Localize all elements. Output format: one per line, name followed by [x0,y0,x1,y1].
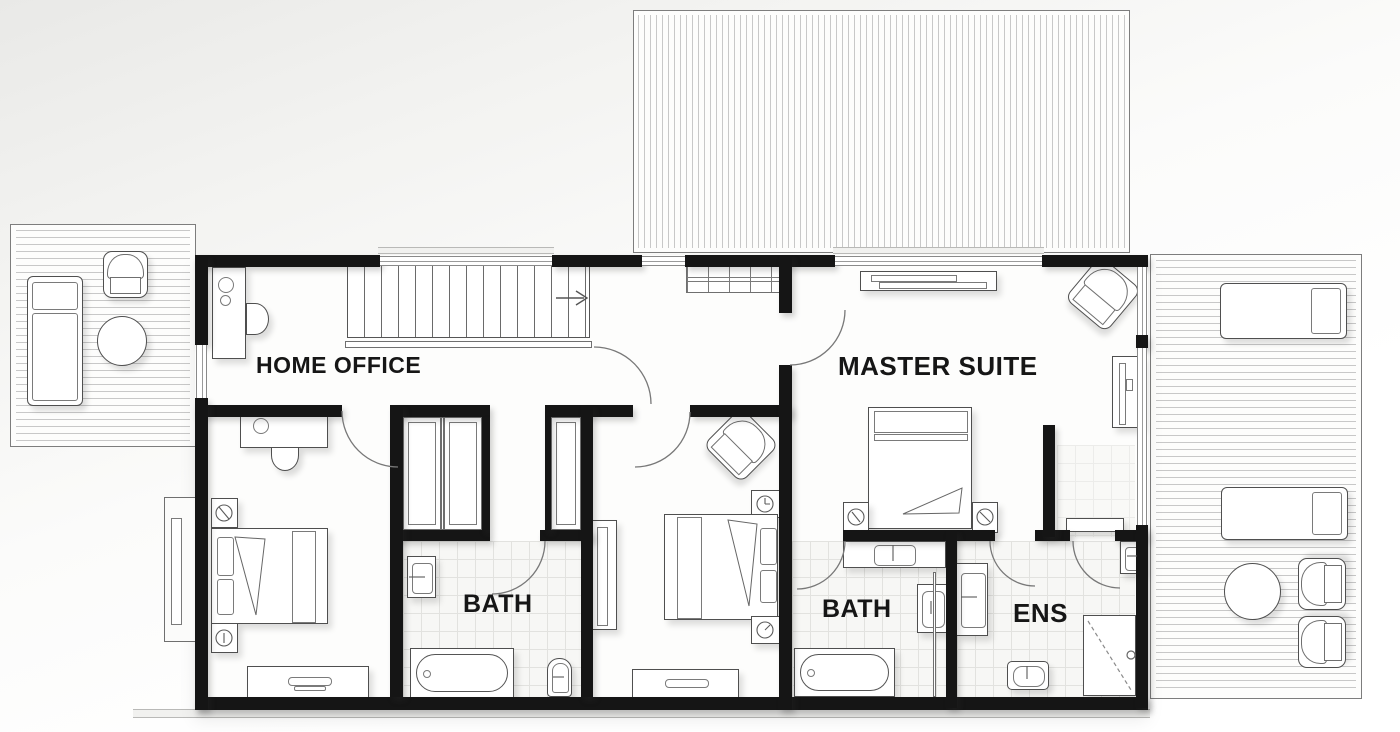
lounger-body [32,313,78,401]
nightstand [211,623,238,653]
interior-wall [482,417,490,530]
room-label-bath-2: BATH [822,597,892,622]
sun-lounger-icon [1221,487,1348,540]
bed-icon [664,514,778,620]
lower-deck-edge-strip [133,709,1150,718]
toilet-icon [547,658,572,697]
pillow [760,528,777,565]
sink-basin [961,573,986,628]
armchair-icon [1298,616,1346,668]
floor-plan: HOME OFFICE MASTER SUITE BATH BATH ENS [0,0,1400,732]
interior-wall [195,405,342,417]
window-sill [378,247,554,254]
armchair-seat [1324,565,1342,603]
bed-icon [211,528,328,624]
roof-hatched-area [633,10,1130,253]
nightstand [211,498,238,528]
nightstand [972,502,998,533]
interior-wall [946,530,957,708]
closet [551,417,581,530]
exterior-wall [195,255,380,267]
interior-wall [1043,425,1055,537]
round-table-icon [1224,563,1281,620]
vanity-counter [843,541,946,568]
dresser-handle [665,679,709,688]
armchair-seat [1324,623,1342,661]
bathtub-drain [807,669,815,677]
interior-wall [545,417,551,530]
sink-basin [874,545,916,566]
lounger-headrest [1312,492,1342,535]
sun-lounger-icon [27,276,83,406]
interior-wall [843,530,950,541]
stairs-railing [345,341,592,348]
bathtub-drain [423,670,431,678]
exterior-wall [1136,525,1148,708]
dresser-handle [294,686,326,691]
exterior-wall [1136,335,1148,348]
headboard [874,411,968,433]
dresser-handle [288,677,332,686]
room-label-bath-1: BATH [463,592,533,617]
interior-wall [390,405,403,697]
shower-icon [1083,615,1136,696]
closet-interior [556,422,576,525]
stairs [347,258,590,338]
closet-interior [449,422,477,525]
exterior-wall [195,398,208,710]
pillow [760,570,777,603]
shelf-item [871,275,957,282]
dresser [632,669,739,699]
exterior-wall [685,255,835,267]
master-shelf [860,271,997,291]
window [196,345,207,398]
bedroom1-desk [240,412,328,448]
bed-icon [868,407,972,529]
toilet-bowl [1013,666,1045,687]
lounger-headrest [1311,288,1341,334]
interior-wall [395,530,490,541]
sun-lounger-icon [1220,283,1347,339]
shelf-item [879,282,987,289]
pillow [217,537,234,576]
window [835,256,1042,266]
sink-vanity-icon [956,563,988,636]
armchair-back [1301,620,1327,664]
wardrobe [591,520,617,630]
armchair-icon [103,251,148,298]
exterior-wall [195,255,208,345]
closet-interior [408,422,436,525]
closet [403,417,441,530]
toilet-icon [1007,661,1049,690]
lounger-headrest [32,282,78,310]
office-desk [212,267,246,359]
shower-screen [933,572,936,697]
armchair-back [107,254,144,279]
window [1137,348,1147,525]
interior-wall [395,405,490,417]
desk-lamp-icon [253,418,269,434]
bay-window [164,497,197,642]
blanket-band [677,517,702,619]
desk-lamp-icon [218,277,234,293]
nightstand [751,616,780,644]
armchair-icon [1298,558,1346,610]
nightstand [843,502,869,533]
interior-wall [690,405,792,417]
sink-vanity-icon [407,556,436,598]
room-label-master-suite: MASTER SUITE [838,353,1038,379]
exterior-wall [1042,255,1148,267]
room-label-ensuite: ENS [1013,600,1068,626]
interior-wall [779,255,792,313]
interior-wall [779,365,792,710]
hall-cabinet [686,263,790,293]
window [380,256,552,266]
armchair-seat [110,277,141,294]
exterior-wall [195,697,1148,710]
tv-screen [1119,363,1126,425]
tv-knob [1126,379,1133,391]
window [1137,267,1147,335]
round-table-icon [97,316,147,366]
desk-accessory-icon [220,295,231,306]
sink-basin [412,563,433,594]
interior-wall [581,405,593,697]
window-sill [833,247,1044,254]
blanket-band [874,434,968,441]
closet [444,417,482,530]
wardrobe-rail [597,527,608,626]
roof-hatch-pattern [638,15,1125,248]
window [642,256,685,266]
armchair-back [1301,562,1327,606]
pillow [217,579,234,615]
bay-window-glass [171,518,182,625]
toilet-bowl [552,663,569,693]
blanket-band [292,531,316,623]
dresser [247,666,369,698]
room-label-home-office: HOME OFFICE [256,354,421,377]
bathtub-icon [794,648,895,697]
exterior-wall [552,255,642,267]
bathtub-icon [410,648,514,698]
